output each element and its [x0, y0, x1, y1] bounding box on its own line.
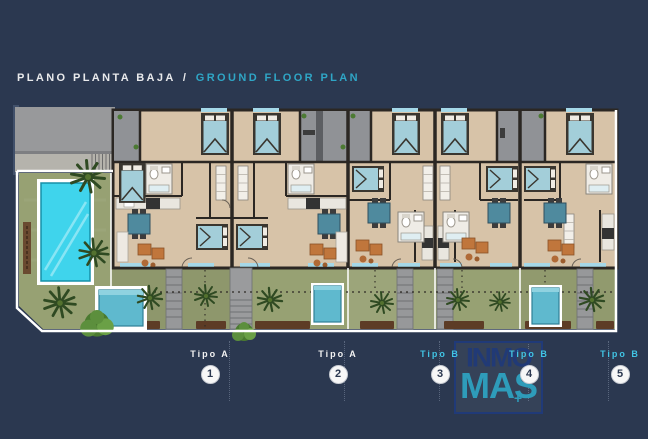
unit-number-badge: 4 — [520, 365, 539, 384]
unit-type-label: Tipo A — [165, 349, 255, 359]
unit-number-badge: 3 — [431, 365, 450, 384]
unit-number-badge: 2 — [329, 365, 348, 384]
unit-number-badge: 1 — [201, 365, 220, 384]
unit-labels-row: Tipo A 1 Tipo A 2 Tipo B 3 Tipo B 4 Tipo — [0, 0, 648, 439]
unit-type-label: Tipo B — [484, 349, 574, 359]
unit-type-label: Tipo B — [575, 349, 648, 359]
unit-type-label: Tipo A — [293, 349, 383, 359]
page: PLANO PLANTA BAJA / GROUND FLOOR PLAN — [0, 0, 648, 439]
unit-number-badge: 5 — [611, 365, 630, 384]
unit-type-label: Tipo B — [395, 349, 485, 359]
